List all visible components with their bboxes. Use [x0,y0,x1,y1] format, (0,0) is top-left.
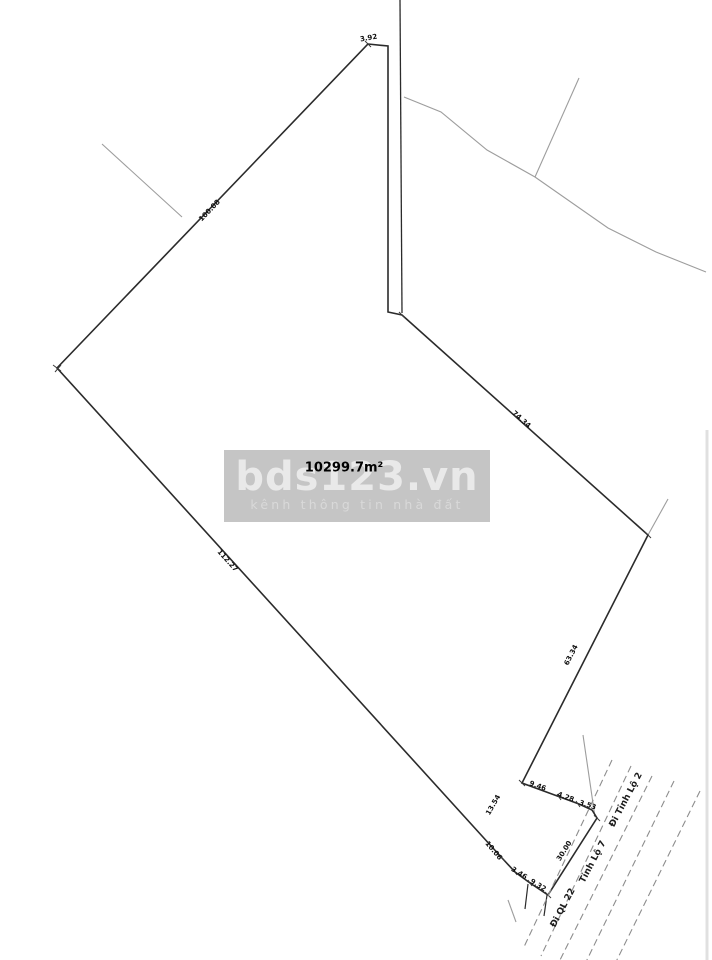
southwest-edge-measurement-label: 112.27 [215,548,239,574]
survey-diagram: bds123.vn kênh thông tin nhà đất [0,0,712,960]
segment-9-46-measurement-label: 9.46 [528,779,547,792]
neighbor-line-bottom [508,900,516,922]
di-ql-22-road-label: Đi QL 22 [549,887,578,929]
neighbor-boundaries [102,78,706,922]
neighbor-line-northwest [102,144,182,217]
parcel-area-label: 10299.7m² [305,461,383,476]
road-line-5 [610,791,700,960]
top-edge-measurement-label: 3.92 [359,33,378,44]
segment-9-32-measurement-label: 9.32 [529,877,548,893]
frontage-stub-right [544,895,547,916]
segment-4-28-measurement-label: 4.28 [556,790,575,803]
parcel-drawing: 3.92100.08112.2774.3463.349.464.283.5313… [0,0,712,960]
di-tinh-lo-2-road-label: Đi Tỉnh Lộ 2 [607,771,645,829]
neighbor-line-top-right [535,78,579,177]
segment-10-06-measurement-label: 10.06 [483,840,503,862]
segment-13-54-measurement-label: 13.54 [484,793,502,816]
road-dashed-lines [523,760,700,960]
labels-layer: 3.92100.08112.2774.3463.349.464.283.5313… [197,33,644,930]
neighbor-line-northeast [404,97,706,272]
northwest-edge-measurement-label: 100.08 [197,198,222,223]
frontage-stub-left [525,884,528,909]
northeast-edge-measurement-label: 74.34 [510,409,532,430]
east-edge-measurement-label: 63.34 [563,643,580,666]
neighbor-line-east-corner [648,499,668,535]
strip-right-line [400,0,402,313]
segment-3-53-measurement-label: 3.53 [578,799,597,812]
